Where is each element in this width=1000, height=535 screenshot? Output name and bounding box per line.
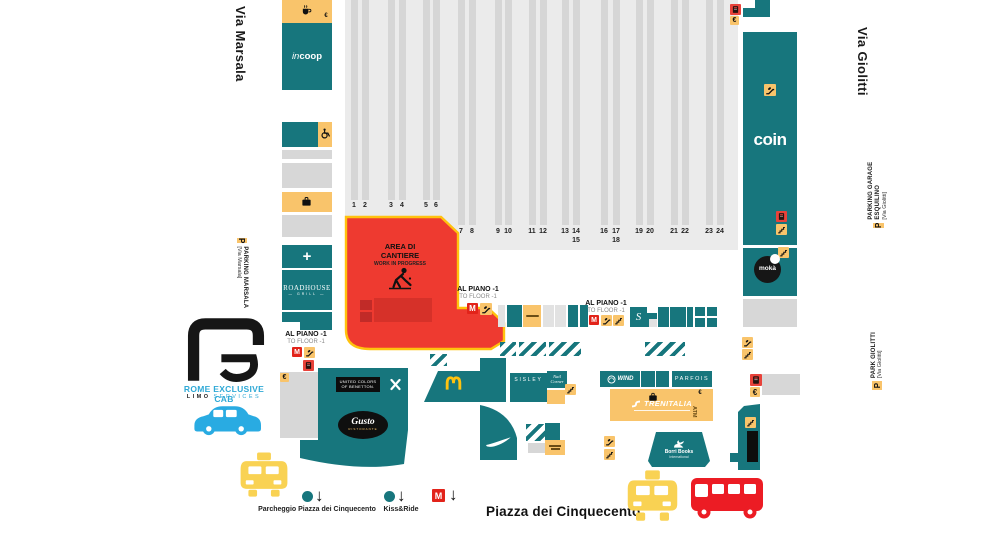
icon-layer: €MMM€€€€ — [0, 0, 1000, 535]
icon-escalator-icon — [601, 315, 612, 326]
icon-escalator-icon — [604, 436, 615, 447]
x-logo — [389, 378, 402, 391]
park-giolitti-label: P PARK GIOLITTI [Via Giolitti] — [867, 332, 887, 390]
construction-worker-icon — [386, 266, 414, 290]
parking-esquilino-name1: PARKING GARAGE — [868, 162, 875, 220]
parking-marsala-via: [Via Marsala] — [236, 246, 242, 308]
icon-stairs-icon — [613, 315, 624, 326]
taxi-icon-right — [625, 470, 680, 522]
icon-metro-icon: M — [589, 315, 599, 325]
icon-euro-icon: € — [730, 16, 739, 25]
metro-legend-icon: M — [432, 489, 445, 502]
floor-label-3: AL PIANO -1TO FLOOR -1 — [278, 331, 334, 346]
parking-icon: P — [872, 381, 882, 390]
moka-logo: mokà — [754, 256, 781, 283]
icon-escalator-icon — [742, 337, 753, 348]
floor-label-1: AL PIANO -1TO FLOOR -1 — [456, 286, 500, 301]
down-arrow-icon: ↓ — [315, 487, 324, 504]
icon-escalator-icon — [304, 347, 315, 358]
parking-marsala-label: P PARKING MARSALA [Via Marsala] — [232, 238, 252, 306]
legend-parcheggio: Parcheggio Piazza dei Cinquecento — [258, 506, 376, 513]
parking-icon: P — [237, 238, 247, 243]
parking-esquilino-name2: ESQUILINO — [875, 162, 882, 220]
icon-escalator-icon — [480, 303, 492, 315]
bus-icon — [690, 477, 764, 519]
street-label-via-marsala: Via Marsala — [232, 6, 248, 86]
icon-stairs-icon — [604, 449, 615, 460]
construction-area-label: AREA DI CANTIERE WORK IN PROGRESS — [330, 243, 470, 267]
icon-metro-icon: M — [467, 303, 478, 314]
icon-ticket-icon — [303, 360, 314, 371]
icon-euro-icon: € — [280, 373, 289, 382]
parcheggio-dot — [302, 491, 313, 502]
piazza-label: Piazza dei Cinquecento — [486, 504, 646, 519]
icon-coffee-icon — [300, 3, 313, 16]
down-arrow-icon: ↓ — [397, 487, 406, 504]
icon-stairs-icon — [565, 384, 576, 395]
icon-suitcase-icon — [300, 195, 313, 208]
icon-euro-icon: € — [322, 12, 330, 20]
benetton-sign: UNITED COLORS OF BENETTON. — [336, 377, 380, 392]
icon-ticket-icon — [776, 211, 787, 222]
icon-stairs-icon — [776, 224, 787, 235]
parking-esquilino-via: [Via Giolitti] — [882, 162, 888, 220]
parking-icon: P — [873, 223, 884, 228]
icon-escalator-icon — [764, 84, 776, 96]
mcdonalds-logo — [444, 373, 463, 392]
gusto-logo: Gusto RISTORANTE — [338, 411, 388, 439]
park-giolitti-via: [Via Giolitti] — [877, 332, 883, 378]
nike-swoosh-logo — [485, 436, 512, 448]
down-arrow-icon: ↓ — [449, 486, 458, 503]
parking-marsala-name: PARKING MARSALA — [242, 246, 249, 308]
floor-label-2: AL PIANO -1TO FLOOR -1 — [584, 300, 628, 315]
construction-line2: CANTIERE — [381, 252, 419, 261]
icon-euro-icon: € — [750, 387, 760, 397]
icon-stairs-icon — [745, 417, 756, 428]
termini-station-map: 123456789101112131415161718192021222324 … — [0, 0, 1000, 535]
coin-logo: coin — [743, 126, 797, 154]
icon-wheelchair-icon — [319, 127, 332, 140]
limo-car-icon — [188, 400, 262, 436]
rome-exclusive-cab-monogram — [183, 315, 269, 383]
borri-books-logo: Borri Books International — [648, 434, 710, 465]
icon-ticket-icon — [730, 4, 741, 15]
vertical-sign — [747, 431, 758, 462]
icon-stairs-icon — [742, 349, 753, 360]
icon-ticket-icon — [750, 374, 762, 386]
legend-kiss-ride: Kiss&Ride — [365, 506, 437, 513]
parking-esquilino-label: P PARKING GARAGE ESQUILINO [Via Giolitti… — [866, 162, 890, 228]
taxi-icon-left — [238, 452, 290, 498]
icon-metro-icon: M — [292, 347, 302, 357]
trenitalia-atm-strip: ATM — [692, 392, 708, 420]
kissride-dot — [384, 491, 395, 502]
icon-darkcase-icon — [648, 392, 658, 402]
street-label-via-giolitti: Via Giolitti — [854, 27, 870, 113]
park-giolitti-name: PARK GIOLITTI — [871, 332, 878, 378]
